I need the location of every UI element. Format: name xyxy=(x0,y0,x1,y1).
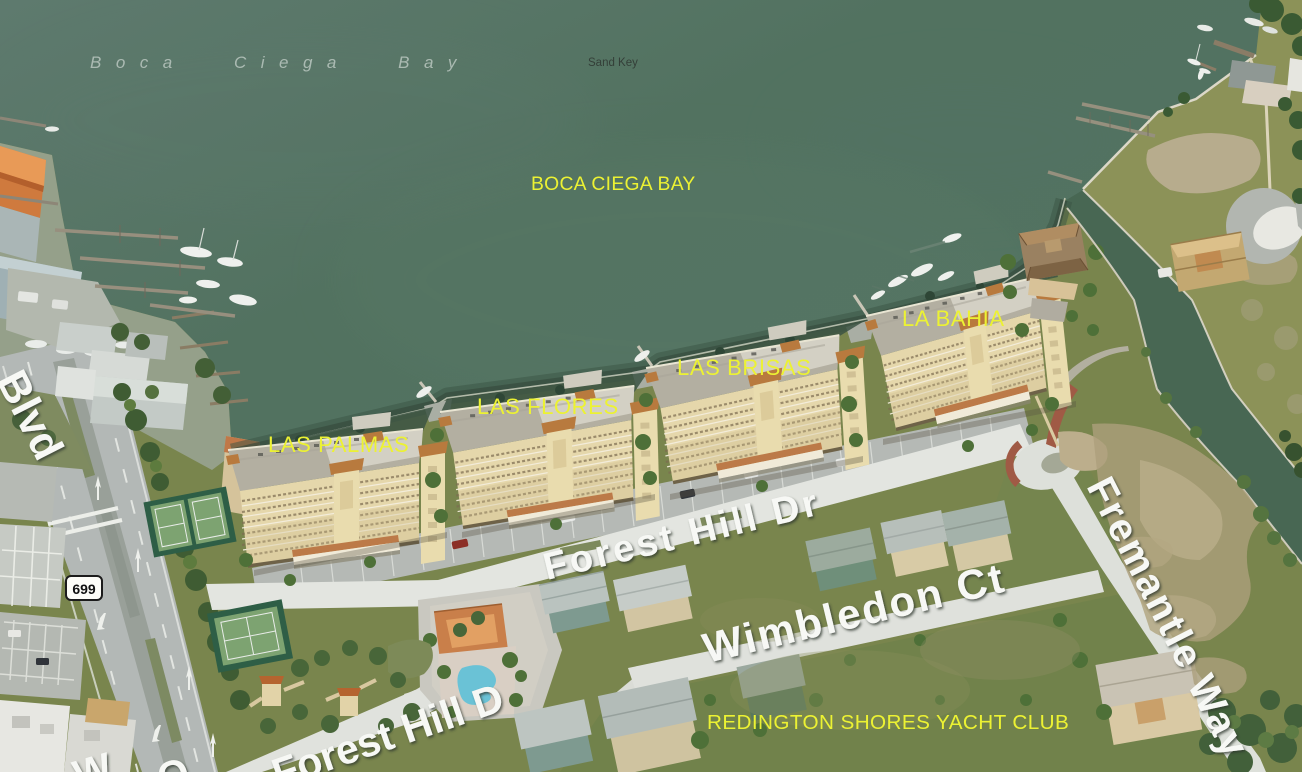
svg-text:Sand Key: Sand Key xyxy=(588,57,638,69)
svg-text:LA BAHIA: LA BAHIA xyxy=(902,306,1005,331)
svg-text:Boca Ciega Bay: Boca Ciega Bay xyxy=(90,53,471,72)
svg-text:REDINGTON SHORES YACHT CLUB: REDINGTON SHORES YACHT CLUB xyxy=(707,711,1069,734)
svg-text:BOCA CIEGA BAY: BOCA CIEGA BAY xyxy=(531,174,696,195)
svg-text:699: 699 xyxy=(72,581,96,597)
svg-text:LAS PALMAS: LAS PALMAS xyxy=(268,432,409,457)
svg-text:LAS BRISAS: LAS BRISAS xyxy=(677,355,811,380)
svg-text:LAS FLORES: LAS FLORES xyxy=(477,394,619,419)
